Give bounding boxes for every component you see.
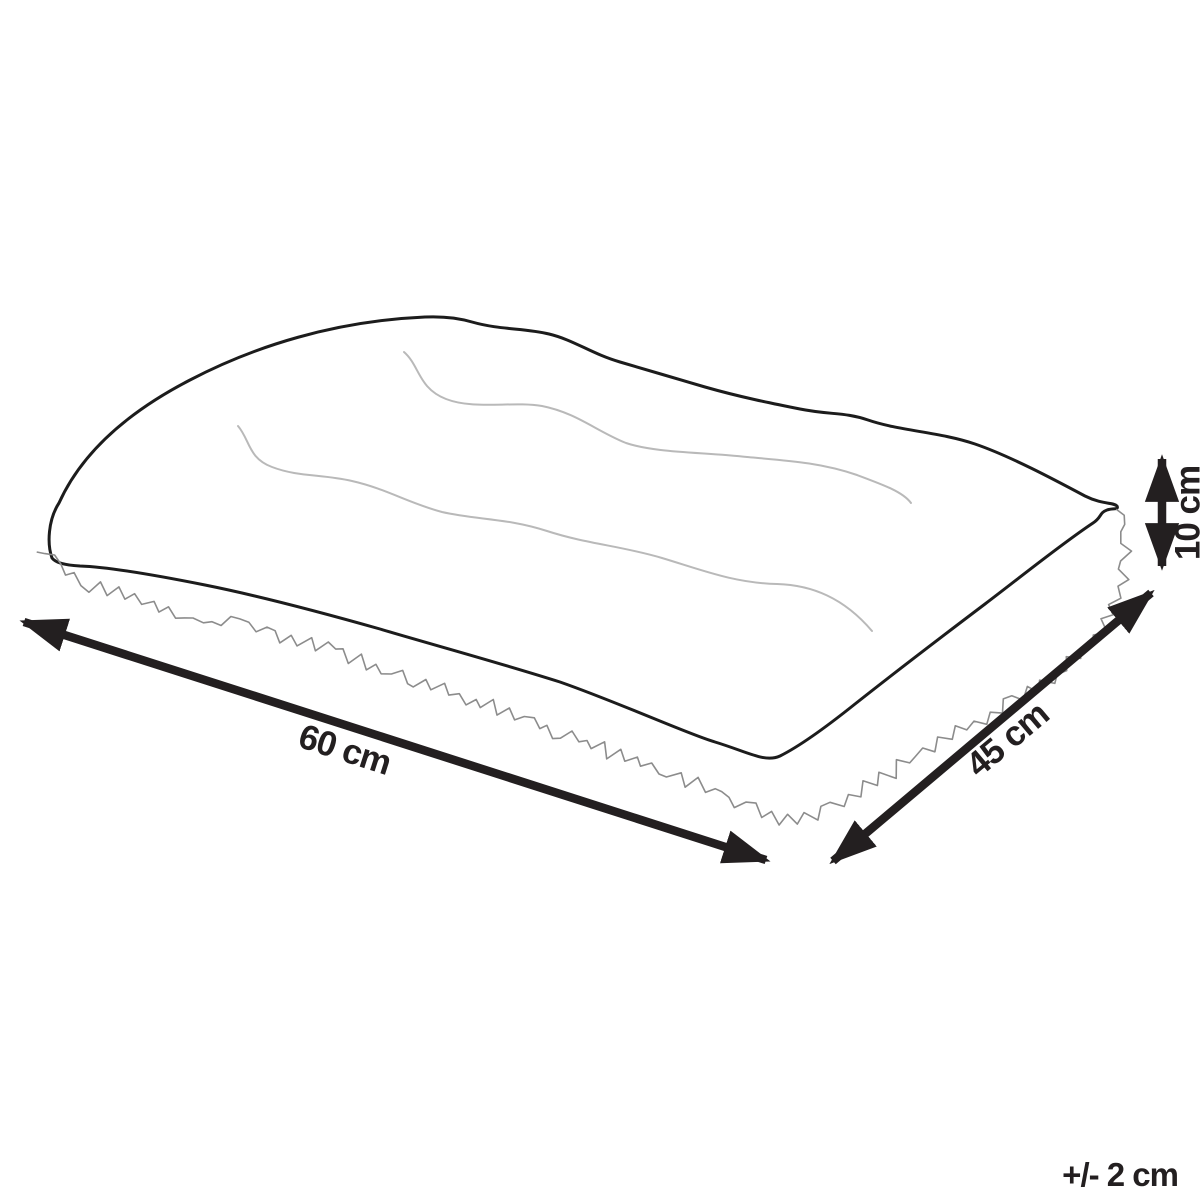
height-dimension-arrow: 10 cm (1162, 459, 1200, 566)
tolerance-label: +/- 2 cm (1062, 1156, 1178, 1193)
width-dimension-arrow: 60 cm (24, 622, 766, 860)
quilt-line-bottom (238, 426, 872, 631)
pillow-dimension-drawing: 60 cm 45 cm 10 cm +/- 2 cm (0, 0, 1200, 1200)
quilt-line-top (404, 352, 911, 503)
pillow-outline (49, 317, 1117, 758)
height-label: 10 cm (1168, 466, 1200, 560)
fur-trim (37, 509, 1132, 825)
product-dimension-diagram: 60 cm 45 cm 10 cm +/- 2 cm (0, 0, 1200, 1200)
width-arrow-line (24, 622, 766, 860)
depth-dimension-arrow: 45 cm (833, 593, 1151, 861)
